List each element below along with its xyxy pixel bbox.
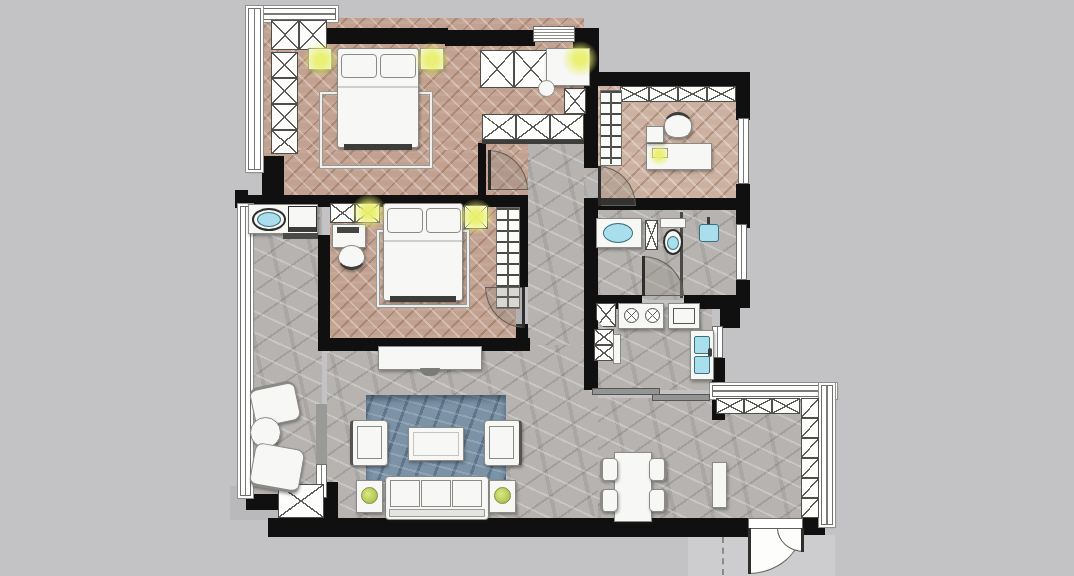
corridor-floor (528, 142, 584, 348)
wall (268, 518, 748, 537)
pillow (380, 54, 416, 78)
bay-window (248, 8, 261, 170)
wardrobe-cabinet (271, 104, 298, 130)
closet-cabinet (516, 114, 550, 140)
study-overhead-cabinet (649, 86, 678, 102)
foot-bench (390, 296, 456, 302)
leaning-panel (613, 334, 621, 364)
vanity-sink (603, 223, 633, 243)
study-window (738, 118, 749, 184)
sink-faucet (708, 348, 712, 357)
table-lamp (458, 199, 494, 235)
wall (516, 324, 528, 351)
coffee-table-inner (413, 432, 459, 456)
desk-chair (338, 245, 365, 270)
closet-door-leaf (488, 150, 491, 190)
lounge-chair (249, 442, 306, 494)
study-overhead-cabinet (620, 86, 649, 102)
shoe-cabinet (772, 398, 800, 414)
stove-burner (624, 308, 639, 323)
wall (478, 143, 486, 198)
table-lamp (414, 42, 450, 78)
wall (262, 156, 284, 198)
foot-bench (344, 144, 412, 150)
bathroom-door-leaf (642, 256, 645, 296)
toilet-tank (660, 218, 686, 228)
plant (361, 487, 378, 504)
sheet-line (384, 240, 462, 242)
dining-chair (600, 489, 618, 512)
sliding-door-panel (592, 388, 660, 395)
plant (494, 487, 511, 504)
kitchen-base-cabinet (594, 329, 614, 345)
bay-window (252, 8, 336, 20)
bathroom-cabinet (645, 220, 658, 250)
entry-tall-cabinet (801, 478, 819, 498)
bathroom-window (736, 224, 747, 280)
balcony-window (240, 206, 251, 496)
tv-console (378, 346, 482, 370)
dining-chair (649, 458, 667, 481)
wardrobe-cabinet (271, 130, 298, 154)
sofa-back (389, 509, 485, 517)
closet-cabinet (550, 114, 584, 140)
desk-monitor (337, 227, 359, 233)
entry-tall-cabinet (801, 498, 819, 518)
sofa-cushion (421, 480, 451, 507)
wardrobe-cabinet (271, 78, 298, 104)
sliding-door-panel (652, 394, 710, 401)
pillow (341, 54, 377, 78)
closet-cabinet (480, 50, 514, 88)
wall (736, 184, 750, 228)
pillow (387, 208, 423, 233)
hanger-rail (610, 92, 612, 164)
door-swing-dash-line (722, 537, 724, 575)
wall (318, 235, 330, 339)
armchair-cushion (357, 426, 382, 459)
corridor-floor (584, 168, 598, 198)
wall (736, 72, 750, 120)
shoe-cabinet (744, 398, 772, 414)
sink-basin (694, 356, 710, 374)
entry-tall-cabinet (801, 418, 819, 438)
wall (482, 140, 584, 144)
washing-machine-panel (289, 227, 316, 232)
entry-tall-cabinet (801, 398, 819, 418)
entry-tall-cabinet (801, 458, 819, 478)
dining-chair (649, 489, 667, 512)
shoe-cabinet (716, 398, 744, 414)
wardrobe-cabinet (271, 52, 298, 78)
wall (445, 30, 535, 46)
entry-tall-cabinet (801, 438, 819, 458)
stool (538, 80, 555, 97)
wall (316, 404, 327, 468)
study-overhead-cabinet (707, 86, 736, 102)
armchair-cushion (489, 426, 514, 459)
closet-cabinet (482, 114, 516, 140)
sofa-cushion (452, 480, 482, 507)
console-cabinet (712, 462, 727, 508)
window (533, 26, 575, 42)
dining-table (614, 452, 652, 522)
stove-burner (645, 308, 660, 323)
desk-lamp (648, 144, 670, 166)
dining-chair (600, 458, 618, 481)
bedroom-door-leaf (522, 287, 525, 328)
pillow (426, 208, 461, 233)
study-overhead-cabinet (678, 86, 707, 102)
study-desk-return (646, 126, 664, 143)
wall (598, 72, 748, 86)
floor-plan-canvas (0, 0, 1074, 576)
study-door-leaf (598, 166, 601, 206)
table-lamp (303, 42, 339, 78)
entrance-door-leaf-small (801, 528, 804, 552)
laundry-sink-basin (257, 212, 281, 227)
wardrobe-cabinet (271, 20, 299, 50)
toilet-bowl-inner (667, 236, 679, 250)
table-lamp (351, 194, 387, 230)
entry-window (712, 385, 835, 397)
entry-window (821, 385, 833, 525)
shower-head (699, 224, 719, 242)
shelf (283, 233, 318, 239)
sofa-cushion (390, 480, 420, 507)
entrance-door-leaf (748, 528, 751, 574)
sheet-line (338, 86, 418, 88)
oven-door (673, 308, 695, 324)
table-lamp (562, 41, 598, 77)
closet-cabinet (564, 88, 586, 114)
kitchen-base-cabinet (594, 345, 614, 361)
desk-chair (664, 112, 692, 138)
